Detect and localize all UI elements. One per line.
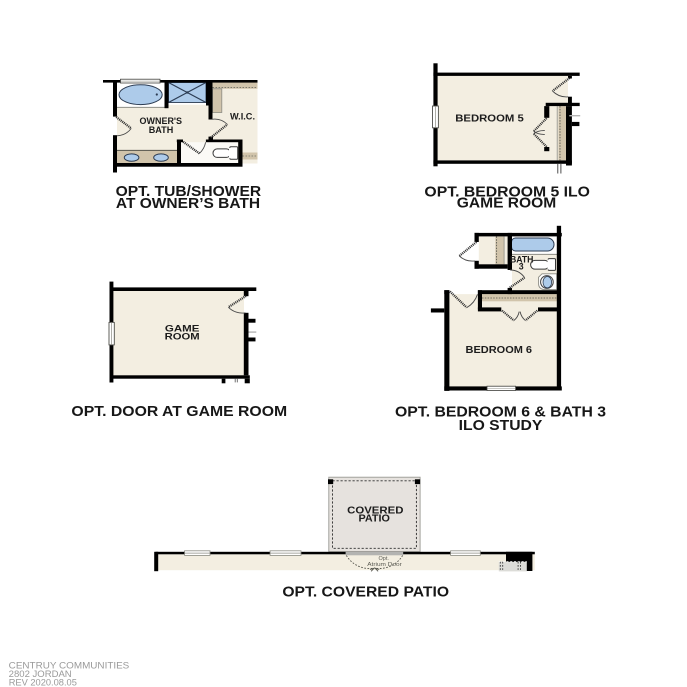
svg-text:PATIO: PATIO [359,513,391,524]
svg-text:Atrium Door: Atrium Door [367,562,402,568]
svg-text:REV 2020.08.05: REV 2020.08.05 [9,677,77,687]
svg-text:OPT. DOOR AT GAME ROOM: OPT. DOOR AT GAME ROOM [71,404,287,420]
svg-text:BEDROOM 5: BEDROOM 5 [455,113,524,124]
svg-text:OPT. COVERED PATIO: OPT. COVERED PATIO [282,585,449,601]
svg-text:ILO STUDY: ILO STUDY [459,418,543,434]
svg-text:AT OWNER’S BATH: AT OWNER’S BATH [116,196,260,212]
svg-text:3: 3 [519,261,524,271]
svg-text:W.I.C.: W.I.C. [230,112,255,122]
svg-text:BATH: BATH [149,125,174,136]
svg-text:GAME ROOM: GAME ROOM [457,196,557,212]
svg-text:ROOM: ROOM [165,332,200,342]
svg-text:BEDROOM 6: BEDROOM 6 [466,345,533,356]
